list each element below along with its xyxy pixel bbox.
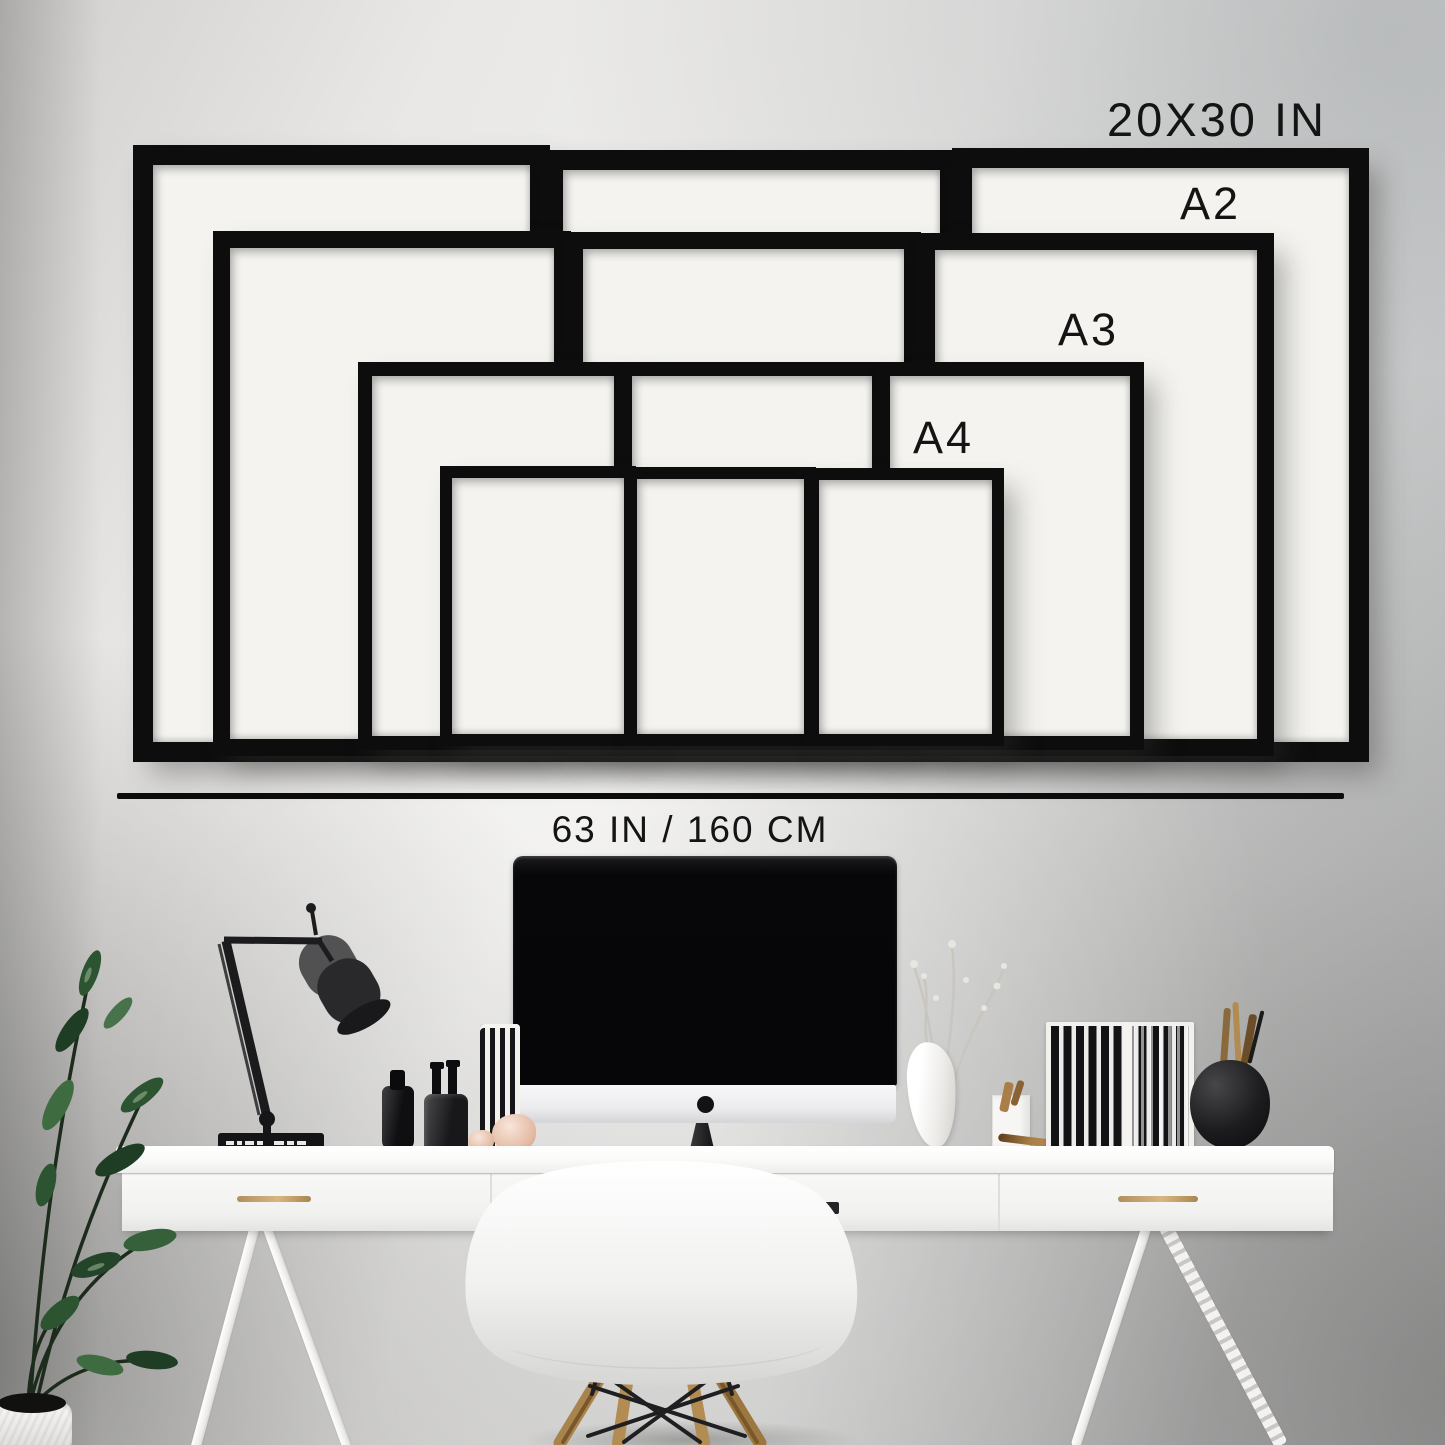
label-size-a2: A2 [1180,181,1241,226]
label-size-20x30: 20X30 IN [1107,96,1327,143]
plant-soil [0,1393,66,1413]
brush-handle-1 [1220,1008,1231,1064]
lamp-finial-knob [306,903,316,913]
drawer-handle-right [1118,1196,1198,1202]
trestle-leg-left-inner [262,1224,351,1445]
dark-glass-jar [424,1094,468,1150]
room-scene: 20X30 IN A2 A3 A4 63 IN / 160 CM [0,0,1445,1445]
imac-logo-dot [697,1096,714,1113]
imac-screen [513,856,897,1086]
lamp-arm-rod [219,944,259,1115]
label-wall-width: 63 IN / 160 CM [552,811,829,848]
lamp-arm-bar [224,940,322,941]
black-round-vase [1190,1060,1270,1149]
frame-a4-right [807,468,1004,746]
lamp-finial [312,911,316,935]
pump-spout-left [430,1062,444,1069]
frame-a4-left [440,466,636,746]
label-size-a3: A3 [1058,307,1119,352]
magazine-file-organizer [1046,1022,1194,1149]
drawer-handle-left [237,1196,311,1202]
organizer-divider [1123,1022,1132,1149]
width-divider-line [117,793,1344,799]
desk-lamp [190,895,420,1160]
trestle-leg-right-inner [1071,1224,1152,1445]
organizer-gloss [1132,1026,1189,1146]
frame-a4-middle [625,467,816,746]
trestle-leg-right-cabled [1159,1223,1288,1445]
plant-leaves [32,948,179,1380]
office-chair [440,1150,890,1445]
potted-plant [0,935,210,1445]
brush-handle-2 [1232,1002,1241,1064]
drawer-seam-right [998,1174,1000,1231]
chair-shell [465,1161,857,1385]
lamp-arm-main [226,941,266,1113]
label-size-a4: A4 [913,415,974,460]
pump-spout-right [446,1060,460,1067]
